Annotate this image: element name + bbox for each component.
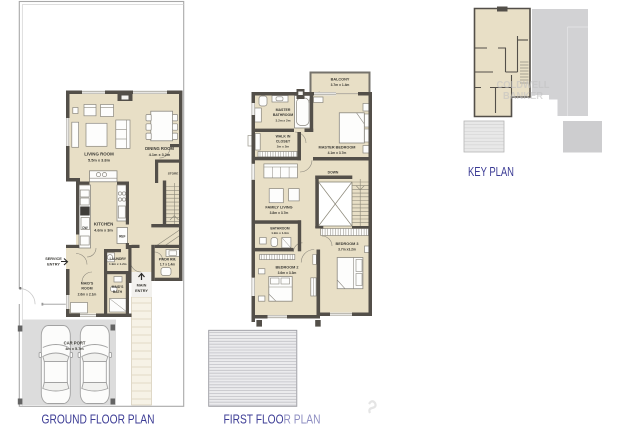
svg-text:MASTER: MASTER	[276, 108, 291, 112]
svg-text:2.6m x 2.1m: 2.6m x 2.1m	[78, 293, 97, 297]
svg-text:3.8m x 3.7m: 3.8m x 3.7m	[270, 211, 289, 215]
svg-text:1.7 x 1.4m: 1.7 x 1.4m	[160, 263, 175, 267]
svg-text:SERVICE: SERVICE	[45, 257, 62, 261]
svg-text:STORE: STORE	[168, 172, 179, 176]
svg-text:CAR PORT: CAR PORT	[64, 341, 86, 346]
svg-text:CLOSET: CLOSET	[276, 140, 291, 144]
svg-text:4m x 5.7m: 4m x 5.7m	[65, 347, 84, 351]
svg-text:ROOM: ROOM	[81, 287, 92, 291]
svg-text:LIVING ROOM: LIVING ROOM	[84, 152, 114, 157]
svg-text:1.9m x 1.2m: 1.9m x 1.2m	[109, 262, 127, 266]
svg-text:FAMILY LIVING: FAMILY LIVING	[265, 206, 292, 210]
svg-text:BANKER: BANKER	[503, 91, 544, 102]
svg-text:MAID'S: MAID'S	[112, 285, 124, 289]
svg-text:3.2m x 2m: 3.2m x 2m	[276, 119, 291, 123]
svg-text:GROUND FLOOR PLAN: GROUND FLOOR PLAN	[42, 412, 155, 427]
svg-text:ENTRY: ENTRY	[135, 289, 148, 293]
svg-text:3.7m x3.2m: 3.7m x3.2m	[338, 248, 356, 252]
svg-text:MASTER BEDROOM: MASTER BEDROOM	[319, 146, 356, 150]
svg-text:BATHROOM: BATHROOM	[273, 113, 293, 117]
svg-text:ENTRY: ENTRY	[47, 263, 60, 267]
svg-text:BATH: BATH	[113, 290, 123, 294]
svg-text:BALCONY: BALCONY	[331, 78, 350, 82]
svg-text:4.1m x 3.2m: 4.1m x 3.2m	[149, 153, 171, 157]
svg-text:MAIN: MAIN	[137, 284, 147, 288]
svg-text:WALK IN: WALK IN	[276, 135, 291, 139]
svg-text:5.5m x 3.8m: 5.5m x 3.8m	[88, 158, 111, 163]
svg-text:BEDROOM 2: BEDROOM 2	[276, 266, 299, 270]
svg-text:COLDWELL: COLDWELL	[497, 80, 550, 91]
svg-text:PWDR RM.: PWDR RM.	[159, 258, 177, 262]
svg-text:BEDROOM 3: BEDROOM 3	[336, 242, 359, 246]
svg-text:REF: REF	[119, 235, 125, 239]
svg-text:KITCHEN: KITCHEN	[94, 222, 114, 227]
svg-text:KEY PLAN: KEY PLAN	[468, 164, 514, 179]
svg-text:DW: DW	[82, 226, 87, 230]
svg-text:DOWN: DOWN	[328, 171, 339, 175]
svg-text:3.6m x 3.3m: 3.6m x 3.3m	[278, 271, 297, 275]
svg-text:BATHROOM: BATHROOM	[270, 227, 289, 231]
svg-text:LAUNDRY: LAUNDRY	[110, 257, 127, 261]
svg-text:MAID'S: MAID'S	[81, 282, 94, 286]
svg-text:DINING ROOM: DINING ROOM	[145, 146, 174, 151]
svg-text:3.7m x 1.4m: 3.7m x 1.4m	[331, 83, 350, 87]
svg-text:2m x 2m: 2m x 2m	[277, 145, 290, 149]
svg-text:1.9m x 1.9m: 1.9m x 1.9m	[271, 231, 289, 235]
svg-text:4.1m x 3.7m: 4.1m x 3.7m	[328, 151, 347, 155]
svg-text:4.6m x 3m: 4.6m x 3m	[94, 228, 113, 233]
